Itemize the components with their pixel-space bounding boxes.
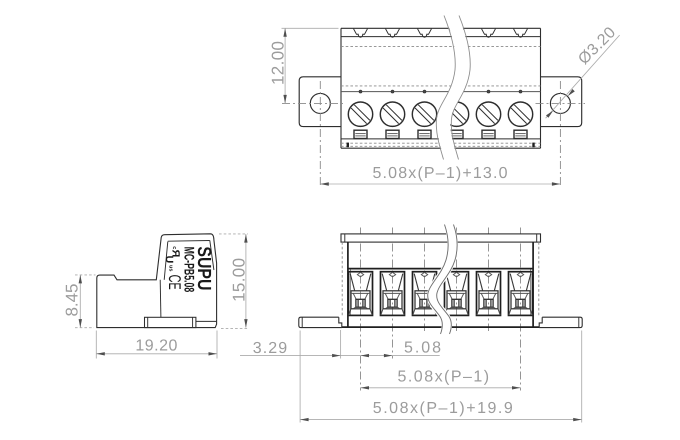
- svg-text:5.08x(P–1): 5.08x(P–1): [398, 368, 490, 385]
- svg-text:19.20: 19.20: [135, 338, 177, 355]
- svg-text:us: us: [168, 265, 174, 271]
- svg-text:U: U: [163, 256, 175, 264]
- svg-text:5.08x(P–1)+19.9: 5.08x(P–1)+19.9: [373, 400, 513, 417]
- svg-text:5.08: 5.08: [404, 340, 441, 357]
- svg-text:15.00: 15.00: [229, 258, 248, 302]
- svg-text:3.29: 3.29: [253, 340, 288, 357]
- svg-text:CE: CE: [165, 275, 184, 290]
- svg-text:5.08x(P–1)+13.0: 5.08x(P–1)+13.0: [373, 165, 508, 182]
- svg-text:12.00: 12.00: [269, 41, 288, 85]
- svg-text:8.45: 8.45: [63, 284, 82, 317]
